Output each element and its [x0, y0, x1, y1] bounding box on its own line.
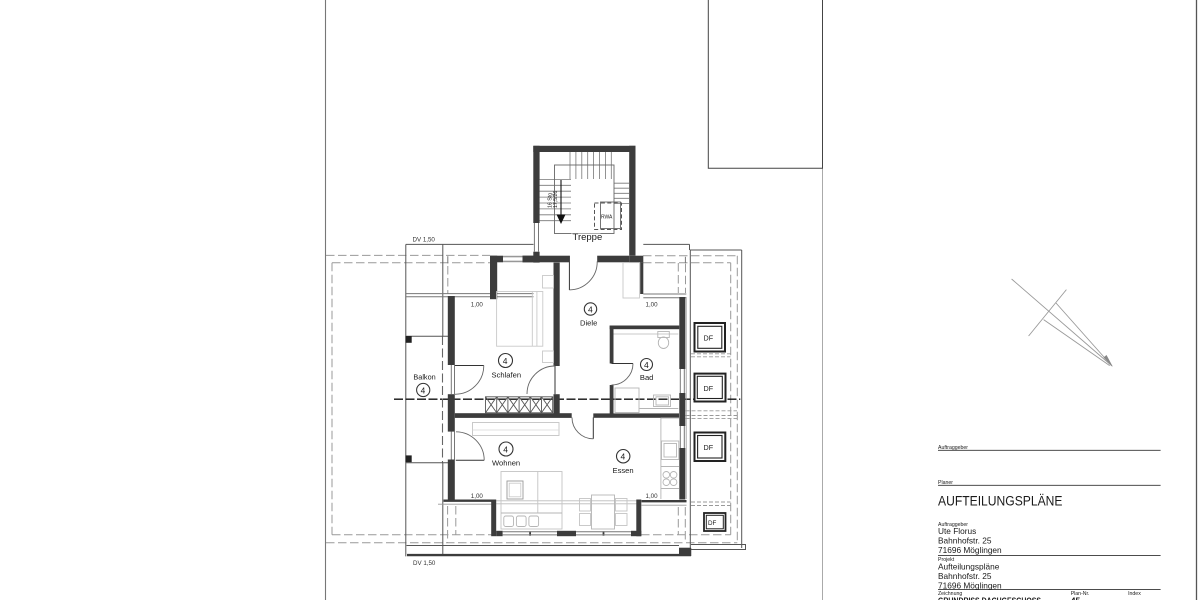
svg-text:4: 4 [503, 356, 508, 366]
svg-text:1,00: 1,00 [646, 493, 659, 500]
svg-text:71696 Möglingen: 71696 Möglingen [938, 580, 1002, 590]
svg-text:Bad: Bad [640, 373, 654, 382]
svg-text:GRUNDRISS DACHGESCHOSS: GRUNDRISS DACHGESCHOSS [938, 596, 1041, 600]
svg-text:Diele: Diele [580, 319, 597, 328]
svg-text:1,00: 1,00 [646, 301, 659, 308]
svg-text:Ute Florus: Ute Florus [938, 526, 976, 536]
svg-text:4: 4 [503, 445, 508, 455]
svg-text:DF: DF [704, 384, 714, 393]
svg-text:Bahnhofstr. 25: Bahnhofstr. 25 [938, 536, 992, 546]
svg-text:17,5/26: 17,5/26 [553, 191, 559, 208]
svg-text:Balkon: Balkon [413, 372, 435, 381]
svg-text:DF: DF [708, 520, 717, 527]
svg-text:DV 1,50: DV 1,50 [413, 237, 436, 244]
svg-text:Treppe: Treppe [573, 232, 603, 243]
svg-text:Essen: Essen [613, 466, 634, 475]
svg-text:Schlafen: Schlafen [492, 371, 522, 380]
svg-text:4: 4 [421, 385, 426, 395]
svg-text:1,00: 1,00 [471, 493, 484, 500]
svg-text:Planer: Planer [938, 480, 953, 486]
svg-text:4: 4 [621, 452, 626, 462]
svg-text:45: 45 [1071, 596, 1081, 600]
svg-text:Index: Index [1128, 591, 1141, 597]
svg-text:Wohnen: Wohnen [492, 459, 520, 468]
svg-text:DF: DF [704, 443, 714, 452]
svg-text:Auftraggeber: Auftraggeber [938, 445, 968, 451]
svg-text:4: 4 [588, 304, 593, 314]
svg-text:DF: DF [704, 334, 714, 343]
svg-text:71696 Möglingen: 71696 Möglingen [938, 545, 1002, 555]
svg-text:1,00: 1,00 [471, 301, 484, 308]
svg-text:AUFTEILUNGSPLÄNE: AUFTEILUNGSPLÄNE [938, 494, 1063, 509]
svg-text:DV 1,50: DV 1,50 [413, 560, 436, 567]
svg-text:RWA: RWA [601, 214, 613, 220]
svg-text:4: 4 [644, 360, 649, 370]
